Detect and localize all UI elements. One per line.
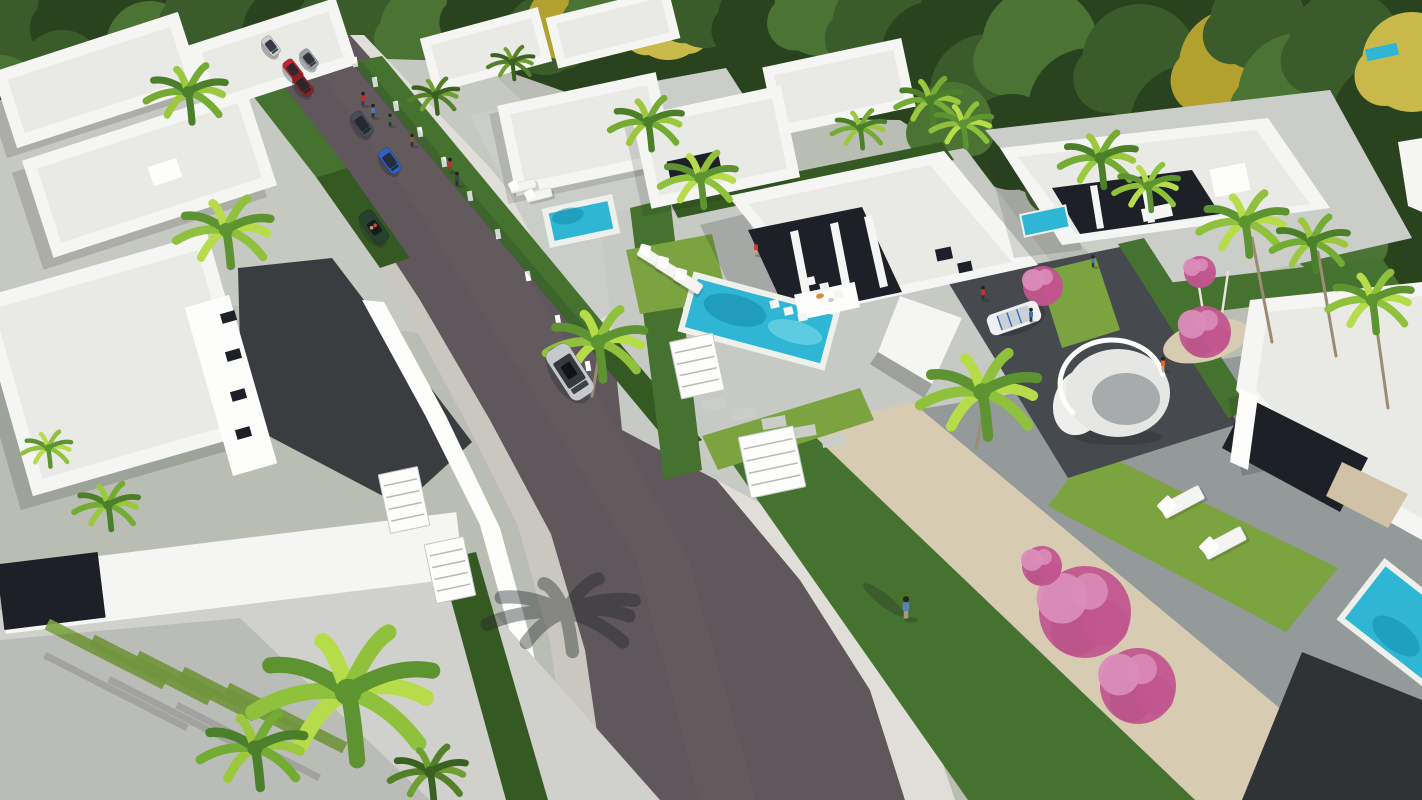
gate-panel (738, 426, 806, 498)
tree-canopy (1073, 43, 1143, 113)
palm-crown (856, 124, 864, 132)
person-head (371, 104, 375, 108)
person-head (1161, 357, 1165, 361)
palm-crown (1143, 181, 1153, 191)
person-torso (903, 602, 909, 611)
palm-crown (694, 172, 705, 183)
bush-bloom (1037, 269, 1053, 285)
person-torso (754, 245, 758, 251)
person-torso (1091, 258, 1094, 263)
person-torso (981, 290, 985, 296)
person-head (754, 241, 758, 245)
palm-crown (509, 59, 516, 66)
palm-crown (1239, 216, 1252, 229)
tree-canopy (1203, 7, 1261, 65)
person-head (455, 172, 459, 176)
person-head (448, 158, 452, 162)
palm-crown (424, 766, 435, 777)
bush-bloom (1036, 549, 1052, 565)
person-head (410, 134, 413, 137)
person-legs (389, 122, 392, 127)
person-legs (755, 250, 758, 255)
person-legs (1030, 317, 1033, 322)
viewport (0, 0, 1422, 800)
person-head (1029, 308, 1033, 312)
palm-crown (643, 117, 654, 128)
palm-crown (182, 86, 194, 98)
palm-crown (959, 120, 968, 129)
pod-interior (1092, 373, 1160, 425)
palm-crown (1094, 152, 1105, 163)
person-legs (1162, 366, 1165, 371)
person-torso (1029, 312, 1033, 318)
palm-crown (219, 223, 233, 237)
person-legs (456, 181, 459, 186)
person-head (981, 286, 985, 290)
palm-crown (247, 740, 262, 755)
palm-crown (973, 383, 990, 400)
palm-crown (1366, 294, 1378, 306)
palm-crown (431, 91, 438, 98)
person-head (361, 92, 365, 96)
person-legs (411, 142, 414, 147)
person-head (903, 596, 909, 602)
person-torso (388, 117, 392, 122)
person-torso (361, 96, 365, 102)
bush-bloom (1127, 654, 1157, 684)
aerial-render (0, 0, 1422, 800)
bush-bloom (1195, 258, 1208, 271)
person-head (1091, 255, 1094, 258)
person-legs (362, 101, 365, 106)
bush-bloom (1071, 573, 1108, 610)
person-torso (455, 176, 459, 182)
bush-bloom (1197, 310, 1218, 331)
tree-canopy (973, 26, 1043, 96)
person-head (388, 114, 391, 117)
person-legs (982, 295, 985, 300)
palm-crown (44, 444, 51, 451)
person-torso (371, 108, 375, 114)
palm-crown (335, 679, 362, 706)
tree-canopy (711, 4, 764, 57)
palm-crown (591, 335, 606, 350)
palm-crown (103, 500, 113, 510)
person-legs (449, 167, 452, 172)
person-legs (1092, 263, 1094, 267)
palm-crown (925, 95, 935, 105)
person-torso (1161, 361, 1165, 367)
person-legs (372, 113, 375, 118)
person-torso (448, 162, 452, 168)
gate-frame (738, 426, 806, 498)
tree-canopy (1281, 27, 1348, 94)
villa-glass-opening (0, 552, 106, 630)
palm-crown (1306, 236, 1317, 247)
person-legs (904, 610, 908, 618)
person-torso (410, 137, 414, 142)
